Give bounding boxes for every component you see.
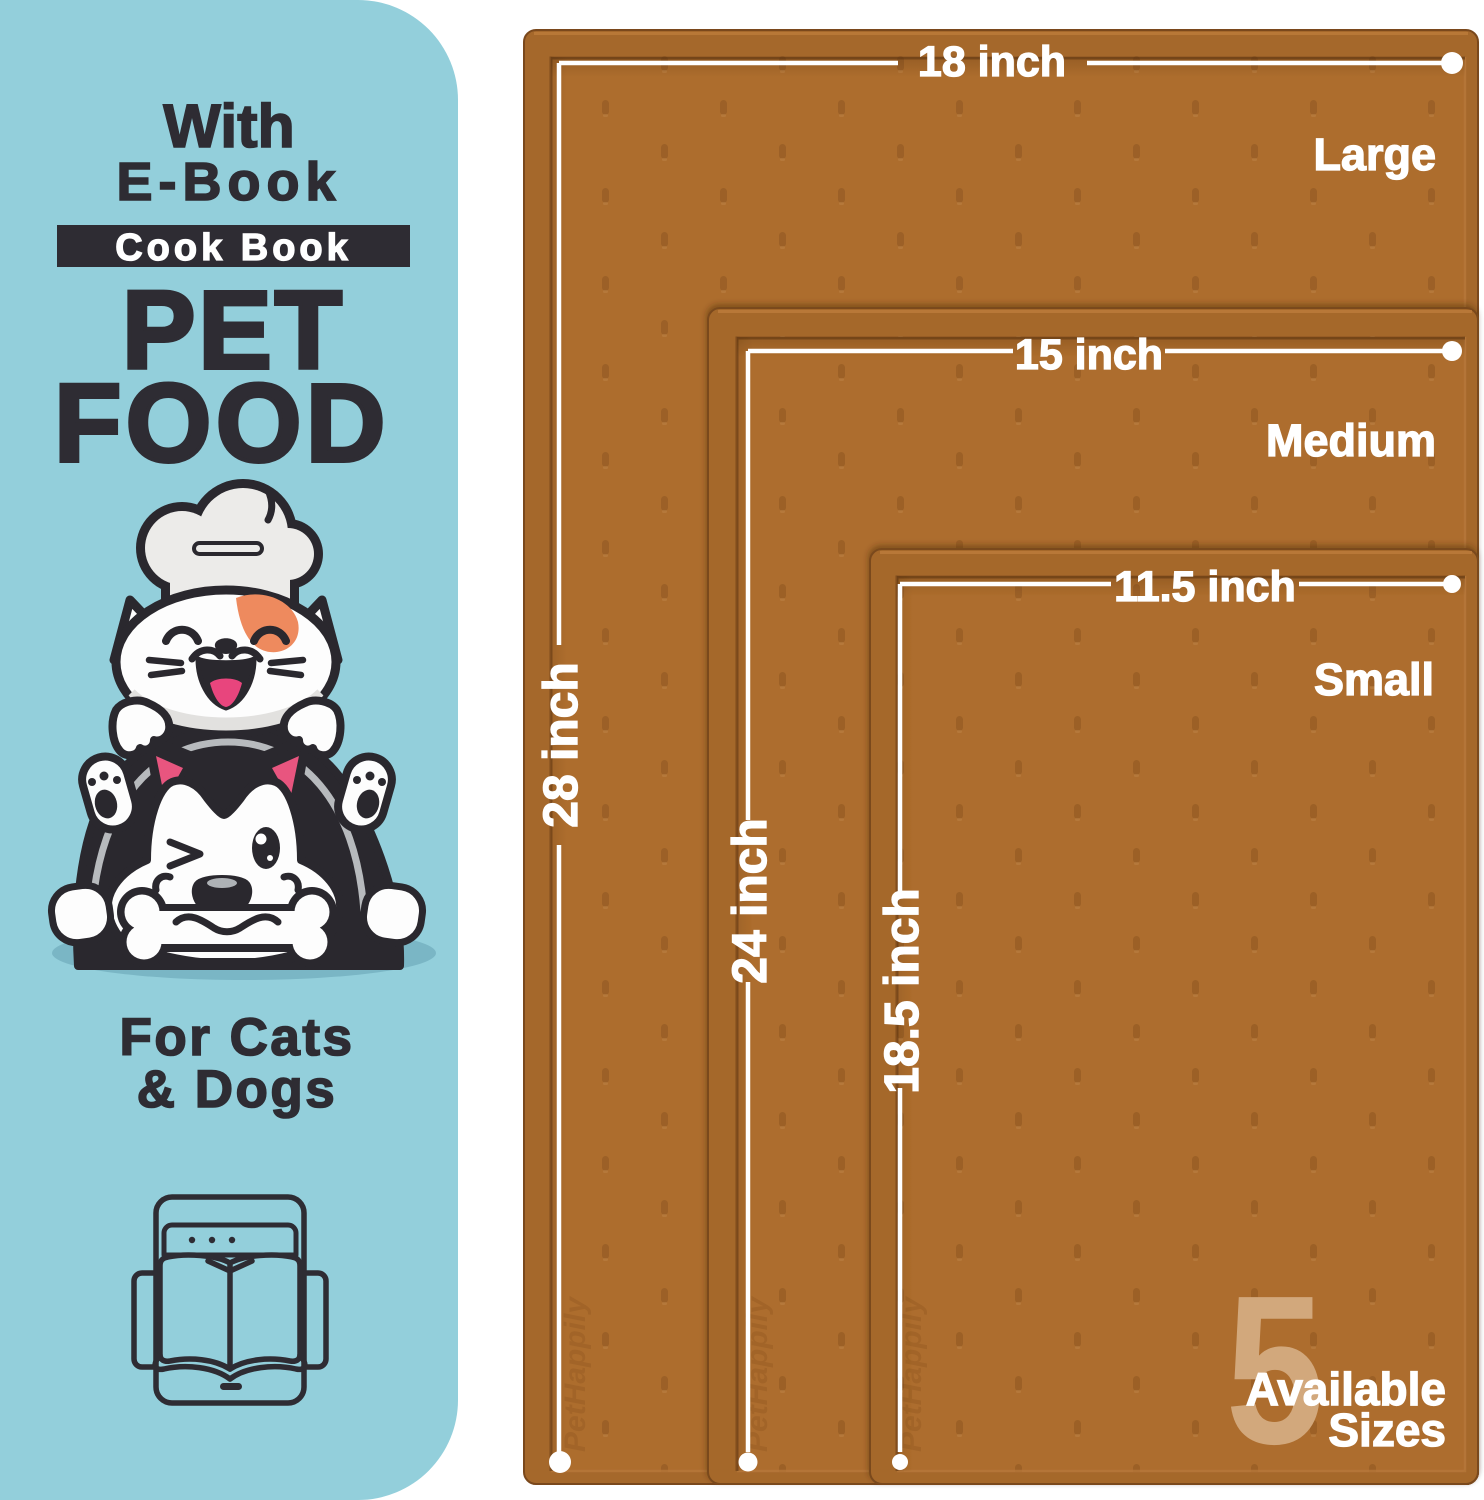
svg-text:15 inch: 15 inch [1015, 331, 1163, 379]
svg-text:Sizes: Sizes [1328, 1404, 1446, 1456]
svg-text:Large: Large [1313, 129, 1436, 180]
svg-text:24 inch: 24 inch [724, 818, 777, 983]
svg-text:18.5 inch: 18.5 inch [876, 888, 929, 1093]
svg-text:28 inch: 28 inch [535, 662, 588, 827]
svg-text:18 inch: 18 inch [918, 38, 1066, 86]
svg-text:Small: Small [1314, 654, 1434, 705]
svg-text:Medium: Medium [1266, 415, 1436, 466]
svg-text:PetHappily: PetHappily [559, 1296, 592, 1452]
svg-text:11.5 inch: 11.5 inch [1114, 563, 1296, 611]
